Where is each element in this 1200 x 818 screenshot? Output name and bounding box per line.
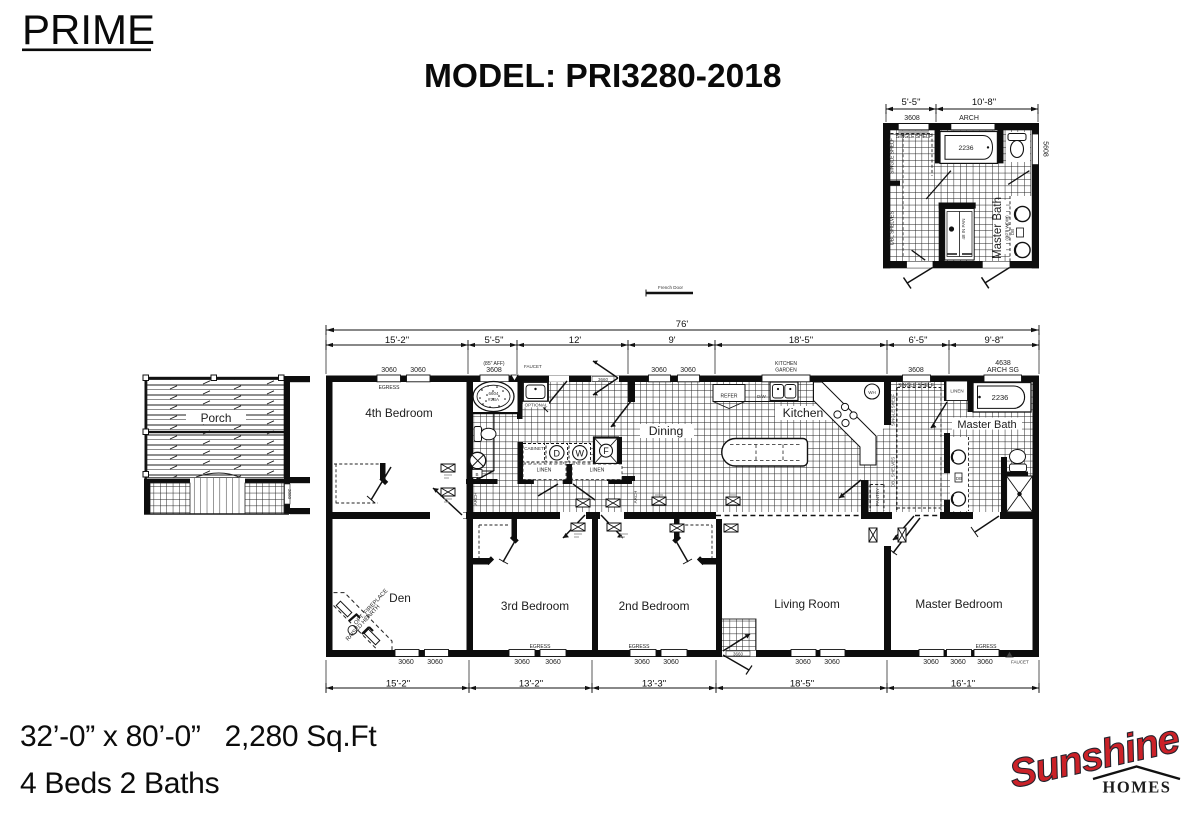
svg-text:LINEN: LINEN — [537, 468, 552, 474]
svg-text:3060: 3060 — [923, 659, 939, 666]
svg-text:KITCHEN: KITCHEN — [775, 361, 797, 367]
svg-text:3060: 3060 — [514, 659, 530, 666]
svg-text:EGRESS: EGRESS — [530, 644, 552, 650]
svg-text:4 Beds 2 Baths: 4 Beds 2 Baths — [20, 767, 219, 800]
svg-text:GARDEN: GARDEN — [775, 368, 797, 374]
svg-text:DBL SHELVES: DBL SHELVES — [890, 211, 896, 245]
svg-text:PRIME: PRIME — [22, 6, 155, 53]
svg-text:16'-1": 16'-1" — [951, 679, 975, 690]
svg-text:#2BA: #2BA — [488, 397, 499, 402]
svg-text:48 IN PAN: 48 IN PAN — [961, 219, 966, 240]
svg-text:B: B — [475, 472, 478, 477]
svg-text:EGRESS: EGRESS — [976, 644, 998, 650]
svg-text:D/W: D/W — [757, 394, 767, 399]
svg-text:13'-2": 13'-2" — [519, 679, 543, 690]
svg-text:5'-5": 5'-5" — [485, 335, 504, 346]
svg-text:12': 12' — [569, 335, 582, 346]
svg-text:D: D — [554, 448, 561, 458]
svg-text:Dining: Dining — [649, 424, 684, 438]
svg-text:SINGLE SHELF: SINGLE SHELF — [898, 383, 934, 389]
svg-text:3608: 3608 — [486, 367, 502, 374]
svg-text:3660: 3660 — [598, 377, 609, 382]
svg-text:5'-5": 5'-5" — [902, 97, 921, 108]
svg-text:F: F — [603, 446, 609, 456]
svg-text:Living Room: Living Room — [774, 597, 840, 611]
svg-text:SINGLE SHELF: SINGLE SHELF — [891, 394, 896, 427]
svg-text:3060: 3060 — [634, 659, 650, 666]
svg-text:9': 9' — [668, 335, 675, 346]
svg-text:DBL SHELVES: DBL SHELVES — [891, 457, 896, 487]
svg-text:SINGLE SHELF: SINGLE SHELF — [890, 138, 896, 174]
svg-text:ARCH: ARCH — [959, 115, 979, 122]
svg-text:EGRESS: EGRESS — [379, 385, 401, 391]
svg-text:6604: 6604 — [488, 391, 499, 396]
svg-text:Kitchen: Kitchen — [783, 406, 824, 420]
svg-text:WH: WH — [868, 390, 876, 395]
svg-text:2nd Bedroom: 2nd Bedroom — [619, 599, 690, 613]
svg-text:3060: 3060 — [824, 659, 840, 666]
svg-text:ARCH SG: ARCH SG — [987, 367, 1019, 374]
svg-text:3060: 3060 — [545, 659, 561, 666]
svg-text:18'-5": 18'-5" — [789, 335, 813, 346]
svg-text:DB: DB — [956, 476, 962, 481]
svg-text:FAUCET: FAUCET — [524, 364, 542, 369]
svg-text:W: W — [576, 448, 585, 458]
svg-text:76': 76' — [676, 319, 689, 330]
svg-text:(OPT WDW): (OPT WDW) — [1005, 215, 1010, 241]
svg-text:REFER: REFER — [721, 394, 738, 400]
svg-text:Master Bath: Master Bath — [992, 197, 1004, 259]
svg-text:Master Bedroom: Master Bedroom — [915, 597, 1002, 611]
svg-text:EGRESS: EGRESS — [629, 644, 651, 650]
svg-text:OPTIONAL: OPTIONAL — [525, 402, 548, 407]
svg-text:MODEL: PRI3280-2018: MODEL: PRI3280-2018 — [424, 58, 781, 95]
svg-text:ARCH: ARCH — [633, 491, 638, 504]
svg-text:15'-2": 15'-2" — [386, 679, 410, 690]
svg-text:2236: 2236 — [992, 393, 1009, 402]
svg-text:4th Bedroom: 4th Bedroom — [365, 406, 433, 420]
svg-text:PANTRY: PANTRY — [875, 488, 880, 506]
svg-text:3660: 3660 — [733, 652, 744, 657]
svg-text:32’-0” x 80’-0” 2,280 Sq.Ft: 32’-0” x 80’-0” 2,280 Sq.Ft — [20, 720, 377, 753]
svg-text:3060: 3060 — [663, 659, 679, 666]
svg-text:SINGLE SHELF: SINGLE SHELF — [896, 134, 932, 140]
svg-text:4638: 4638 — [995, 360, 1011, 367]
svg-text:French Door: French Door — [658, 285, 684, 290]
svg-text:LINEN: LINEN — [950, 389, 963, 394]
svg-text:15'-2": 15'-2" — [385, 335, 409, 346]
svg-text:3060: 3060 — [410, 367, 426, 374]
svg-text:18'-5": 18'-5" — [790, 679, 814, 690]
svg-text:3060: 3060 — [795, 659, 811, 666]
svg-text:3060: 3060 — [680, 367, 696, 374]
svg-text:13'-3": 13'-3" — [642, 679, 666, 690]
svg-text:3060: 3060 — [950, 659, 966, 666]
svg-text:Master Bath: Master Bath — [957, 419, 1016, 431]
svg-text:3060: 3060 — [287, 489, 292, 500]
svg-text:2236: 2236 — [958, 145, 973, 152]
svg-text:HOMES: HOMES — [1103, 778, 1172, 797]
svg-text:3060: 3060 — [977, 659, 993, 666]
svg-text:3060: 3060 — [398, 659, 414, 666]
svg-text:CABINET: CABINET — [524, 446, 544, 451]
svg-text:3rd Bedroom: 3rd Bedroom — [501, 599, 569, 613]
svg-text:3608: 3608 — [904, 115, 920, 122]
svg-text:Den: Den — [389, 591, 411, 605]
svg-text:3608: 3608 — [908, 367, 924, 374]
svg-text:DB: DB — [1010, 229, 1015, 235]
svg-text:6'-5": 6'-5" — [909, 335, 928, 346]
svg-text:FAUCET: FAUCET — [1011, 660, 1029, 665]
svg-text:3060: 3060 — [651, 367, 667, 374]
svg-text:3060: 3060 — [427, 659, 443, 666]
svg-text:Porch: Porch — [201, 411, 232, 425]
svg-text:LINEN: LINEN — [590, 468, 605, 474]
svg-text:3060: 3060 — [381, 367, 397, 374]
svg-text:ARCH: ARCH — [473, 493, 478, 506]
svg-text:9'-8": 9'-8" — [985, 335, 1004, 346]
svg-text:10'-8": 10'-8" — [972, 97, 996, 108]
svg-text:5608: 5608 — [1042, 141, 1049, 157]
